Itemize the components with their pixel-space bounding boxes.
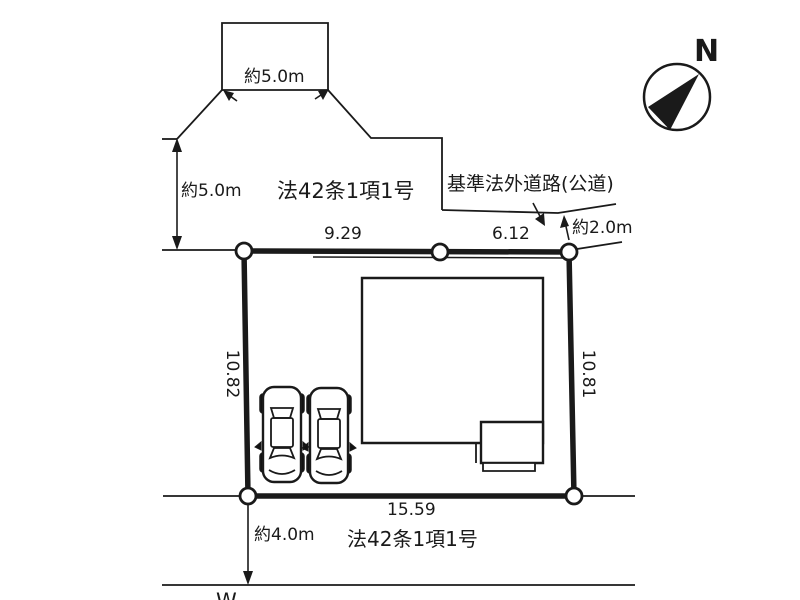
boundary-point-icon — [432, 244, 448, 260]
building-main-outline — [362, 278, 543, 443]
arrow-up-icon — [172, 138, 182, 152]
boundary-point-icon — [236, 243, 252, 259]
dim-top-left-label: 9.29 — [324, 226, 362, 244]
building-footprint — [362, 278, 543, 471]
dim-left-label: 10.82 — [222, 348, 240, 400]
site-plan: N 約5.0m 約5.0m 法42条1項1号 基準法外道路(公道) 約2.0m … — [0, 0, 800, 600]
dim-bottom-label: 15.59 — [387, 502, 436, 520]
car-icon — [255, 387, 309, 482]
compass-icon — [644, 64, 710, 130]
entrance-step — [483, 463, 535, 471]
flag-width-label: 約5.0m — [244, 69, 305, 87]
road-left-slant — [177, 90, 222, 139]
arrow-upleft-icon — [223, 90, 234, 101]
upper-road-outline — [162, 23, 622, 250]
dim-right-label: 10.81 — [578, 348, 596, 400]
outside-road-width-label: 約2.0m — [572, 220, 633, 238]
upper-road-name-label: 法42条1項1号 — [277, 180, 414, 202]
bottom-road-name-label: 法42条1項1号 — [347, 529, 478, 550]
boundary-point-icon — [240, 488, 256, 504]
north-label: N — [694, 36, 719, 68]
car-icon — [302, 388, 356, 483]
outside-road-name-label: 基準法外道路(公道) — [447, 175, 614, 195]
outside-road-top-line — [442, 204, 616, 213]
clipped-bottom-text: W — [216, 590, 237, 600]
dim-top-right-label: 6.12 — [492, 226, 530, 244]
arrow-up-icon — [560, 215, 569, 228]
upper-road-width-label: 約5.0m — [181, 183, 242, 201]
arrow-down-icon — [243, 571, 253, 585]
outside-road-corner-leader — [577, 242, 622, 249]
building-entrance-extension — [481, 422, 543, 463]
boundary-point-icon — [566, 488, 582, 504]
arrow-down-icon — [172, 236, 182, 250]
boundary-point-icon — [561, 244, 577, 260]
bottom-road-width-label: 約4.0m — [254, 527, 315, 545]
